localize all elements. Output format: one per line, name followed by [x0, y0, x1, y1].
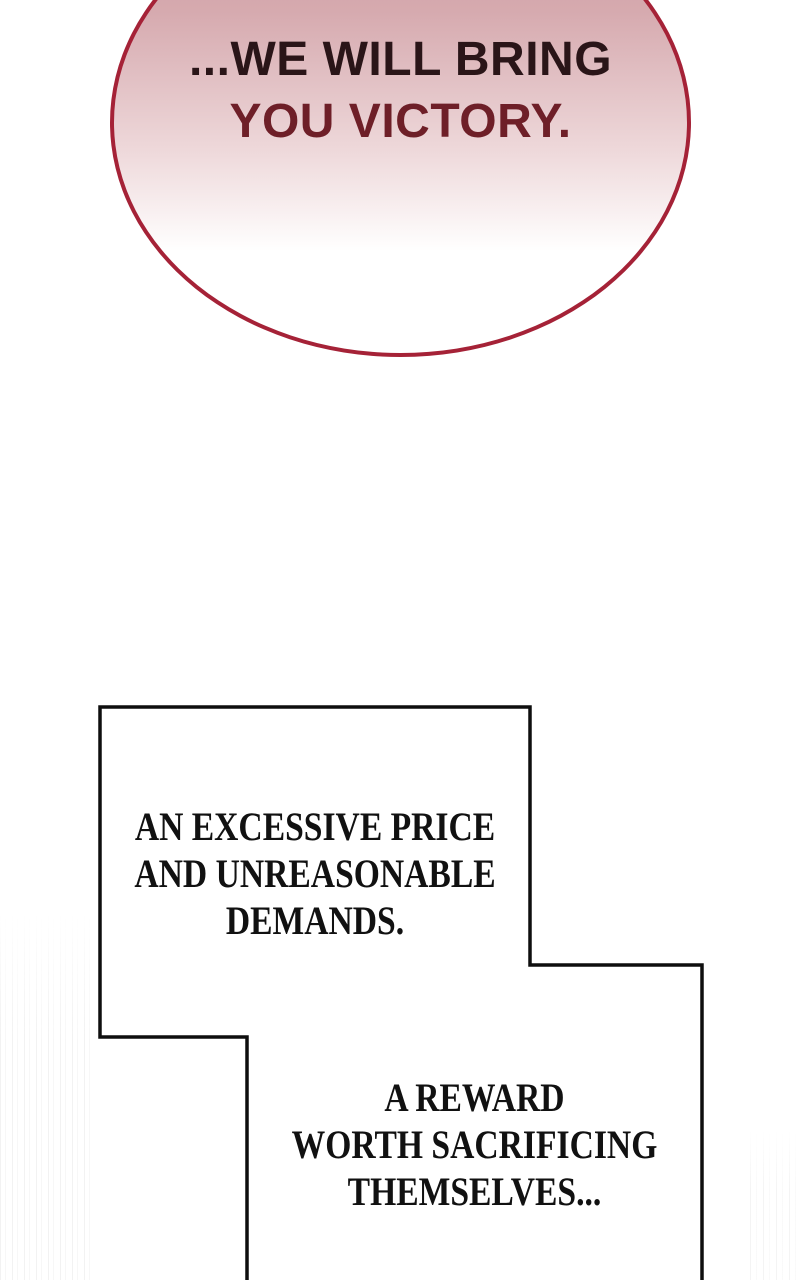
caption-1-line-3: DEMANDS.	[134, 897, 495, 944]
caption-2-line-3: THEMSELVES...	[283, 1168, 665, 1215]
webtoon-panel: ...WE WILL BRING YOU VICTORY. AN EXCESSI…	[0, 0, 800, 1280]
caption-2-line-1: A REWARD	[283, 1074, 665, 1121]
caption-1-line-2: AND UNREASONABLE	[134, 850, 495, 897]
caption-box-2: A REWARD WORTH SACRIFICING THEMSELVES...	[283, 1074, 665, 1215]
caption-1-line-1: AN EXCESSIVE PRICE	[134, 803, 495, 850]
caption-2-line-2: WORTH SACRIFICING	[283, 1121, 665, 1168]
caption-box-1: AN EXCESSIVE PRICE AND UNREASONABLE DEMA…	[134, 803, 495, 944]
